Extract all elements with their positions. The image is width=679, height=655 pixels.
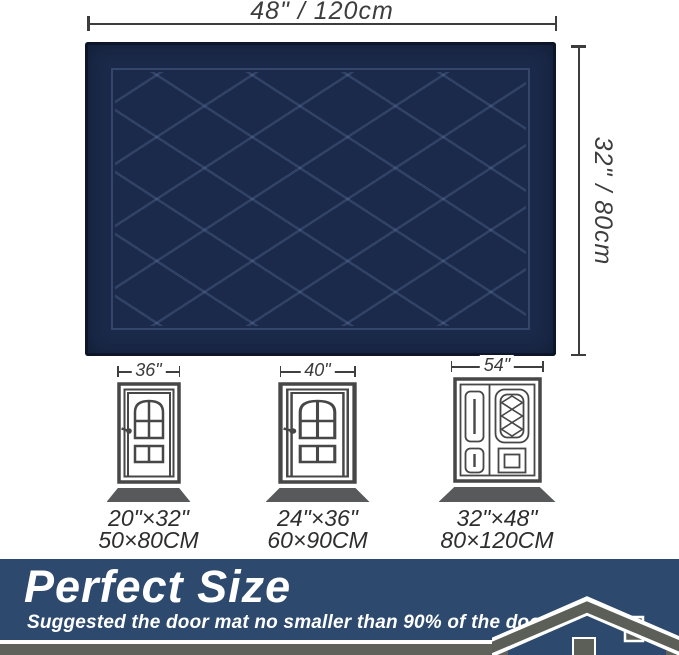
door-size-figure-54: 54" 32"×48" 80×120CM: [434, 357, 560, 551]
mat-height-dimension-line: [571, 45, 586, 356]
door-width-label: 40": [300, 360, 334, 381]
mat-height-dimension-label: 32" / 80cm: [587, 71, 617, 331]
mat-size-inches: 24"×36": [277, 507, 358, 529]
dimension-tick: [555, 16, 558, 31]
mat-width-dimension-line: [87, 16, 557, 31]
single-door-icon: [278, 382, 357, 484]
door-mat-trapezoid: [439, 487, 556, 502]
door-mat-trapezoid: [107, 488, 191, 502]
door-width-dimension: 54": [451, 357, 544, 375]
door-mat-product-image: [85, 42, 556, 356]
product-infographic: 48" / 120cm 32" / 80cm 36": [0, 0, 679, 655]
door-width-dimension: 36": [117, 362, 180, 380]
door-size-figure-40: 40" 24"×36" 60×90CM: [265, 362, 370, 551]
dimension-tick: [571, 354, 586, 357]
mat-size-cm: 50×80CM: [98, 529, 198, 551]
dimension-line: [87, 23, 557, 25]
mat-size-inches: 32"×48": [457, 507, 538, 529]
house-icon: [492, 594, 679, 655]
mat-size-cm: 80×120CM: [440, 529, 553, 551]
door-width-dimension: 40": [280, 362, 356, 380]
dimension-line: [578, 45, 580, 356]
dimension-tick: [179, 366, 181, 377]
dimension-tick: [542, 361, 544, 372]
mat-inner-border: [111, 68, 530, 330]
double-door-icon: [453, 377, 542, 483]
door-mat-trapezoid: [266, 488, 370, 502]
mat-size-cm: 60×90CM: [267, 529, 367, 551]
dimension-tick: [354, 366, 356, 377]
door-width-label: 36": [131, 360, 165, 381]
door-size-figure-36: 36" 20"×32" 50×80CM: [96, 362, 201, 551]
single-door-icon: [117, 382, 181, 484]
door-width-label: 54": [480, 355, 514, 376]
mat-size-inches: 20"×32": [108, 507, 189, 529]
banner-title: Perfect Size: [24, 561, 291, 613]
